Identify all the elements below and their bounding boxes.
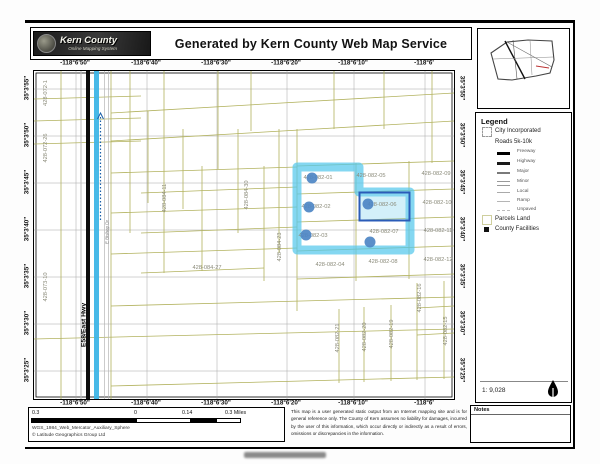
header-bar: Kern County Online Mapping System Genera… [30,27,472,60]
parcel-label: 428-082-04 [315,262,344,268]
road-label-e58: E58/East Hwy [81,303,88,347]
legend-road-type: Freeway [517,149,535,154]
disclaimer-text: This map is a user generated static outp… [291,408,467,437]
legend-road-type: Ramp [517,198,530,203]
axis-label-lon: -118°6'50" [60,60,90,67]
logo-subtitle: Online Mapping System [68,47,117,52]
selected-parcel-marker [365,237,376,248]
selected-parcel-marker [363,199,374,210]
axis-label-lat: 35°3'40" [459,217,466,242]
highway-line-icon [497,162,510,165]
legend-road-type: Local [517,189,528,194]
axis-label-lat: 35°3'40" [24,217,31,242]
page-frame-top [25,20,575,23]
selected-parcel-marker [301,230,312,241]
map-viewport [33,70,455,400]
legend-road-type: Minor [517,179,529,184]
parcel-label: 428-072-26 [43,133,49,162]
legend-title: Legend [481,117,508,126]
freeway-line-icon [497,152,510,155]
page-title: Generated by Kern County Web Map Service [151,37,471,51]
scalebar-label: 0.3 Miles [225,410,246,416]
axis-label-lat: 35°3'45" [459,170,466,195]
parcel-label: 428-073-10 [43,272,49,301]
parcel-label: 428-084-30 [244,180,250,209]
local-line-icon [497,192,510,193]
page-frame-bottom [25,447,575,449]
legend-item-roads-header: Roads 5k-10k [495,139,532,145]
parcel-label: 428-082-10 [422,200,451,206]
parcel-label: 428-084-11 [162,184,168,213]
axis-label-lat: 35°3'35" [24,264,31,289]
legend-item-facilities: County Facilities [495,226,539,232]
parcel-label: 428-082-07 [369,229,398,235]
notes-panel: Notes [470,405,571,443]
parcel-label: 428-082-11 [424,228,453,234]
parcel-label: 428-082-15 [443,316,449,345]
projection-text: WGS_1984_Web_Mercator_Auxiliary_Sphere [32,426,130,431]
scalebar-label: 0.14 [182,410,192,416]
map-export-page: Kern County Online Mapping System Genera… [0,0,600,464]
axis-label-lon: -118°6'30" [201,60,231,67]
county-outline-graphic [478,29,567,106]
parcels-land-icon [482,215,492,225]
axis-label-lat: 35°3'30" [459,311,466,336]
parcel-label: 428-082-05 [356,173,385,179]
scalebar-label: 0.3 [32,410,39,416]
page-frame-right [573,20,575,448]
logo-title: Kern County [60,36,117,46]
notes-title: Notes [471,406,570,415]
parcel-label: 428-082-20 [362,322,368,351]
county-facilities-icon [484,227,489,232]
ramp-line-icon [497,201,510,202]
axis-label-lat: 35°3'50" [24,123,31,148]
parcel-label: 428-082-08 [368,259,397,265]
axis-label-lat: 35°3'55" [459,76,466,101]
unpaved-line-icon [497,210,510,211]
axis-label-lon: -118°6'20" [271,60,301,67]
north-arrow-icon [546,379,560,399]
selected-parcel-marker [304,202,315,213]
parcel-label: 428-082-21 [335,323,341,352]
scalebar-graphic [31,418,241,423]
axis-label-lat: 35°3'25" [24,358,31,383]
county-seal-icon [37,34,56,53]
city-incorporated-icon [482,127,492,137]
axis-label-lat: 35°3'45" [24,170,31,195]
legend-road-type: Unpaved [517,207,536,212]
redacted-text-smudge [244,452,326,458]
parcel-label: 428-072-1 [43,80,49,106]
parcel-label: 428-082-16 [417,283,423,312]
parcel-label: 428-082-12 [423,257,452,263]
axis-label-lat: 35°3'55" [24,76,31,101]
axis-label-lat: 35°3'35" [459,264,466,289]
axis-label-lon: -118°6'10" [338,60,368,67]
parcel-label: 428-082-09 [421,171,450,177]
axis-label-lat: 35°3'30" [24,311,31,336]
kern-county-logo: Kern County Online Mapping System [33,31,151,56]
minor-line-icon [497,181,510,186]
road-label-bishop: E Bishop Dr [105,220,110,244]
axis-label-lon: -118°6'40" [131,60,161,67]
parcel-label: 428-084-27 [192,265,221,271]
selected-parcel-marker [307,173,318,184]
axis-label-lon: -118°6' [414,60,434,67]
parcel-label: 428-084-23 [277,232,283,261]
legend-panel: Legend City Incorporated Roads 5k-10k Fr… [475,112,572,403]
parcel-label: 428-082-19 [389,319,395,348]
scalebar-panel: 0.3 0 0.14 0.3 Miles WGS_1984_Web_Mercat… [28,407,285,442]
legend-item-parcels: Parcels Land [495,216,530,222]
legend-item-city: City Incorporated [495,128,541,134]
legend-road-type: Highway [517,159,535,164]
legend-road-type: Major [517,169,529,174]
copyright-text: © Latitude Geographics Group Ltd [32,433,105,438]
axis-label-lat: 35°3'25" [459,358,466,383]
axis-label-lat: 35°3'50" [459,123,466,148]
map-canvas [34,71,454,399]
scalebar-label: 0 [134,410,137,416]
county-locator-inset [477,28,570,109]
major-line-icon [497,172,510,174]
map-scale-ratio: 1: 9,028 [482,387,506,394]
